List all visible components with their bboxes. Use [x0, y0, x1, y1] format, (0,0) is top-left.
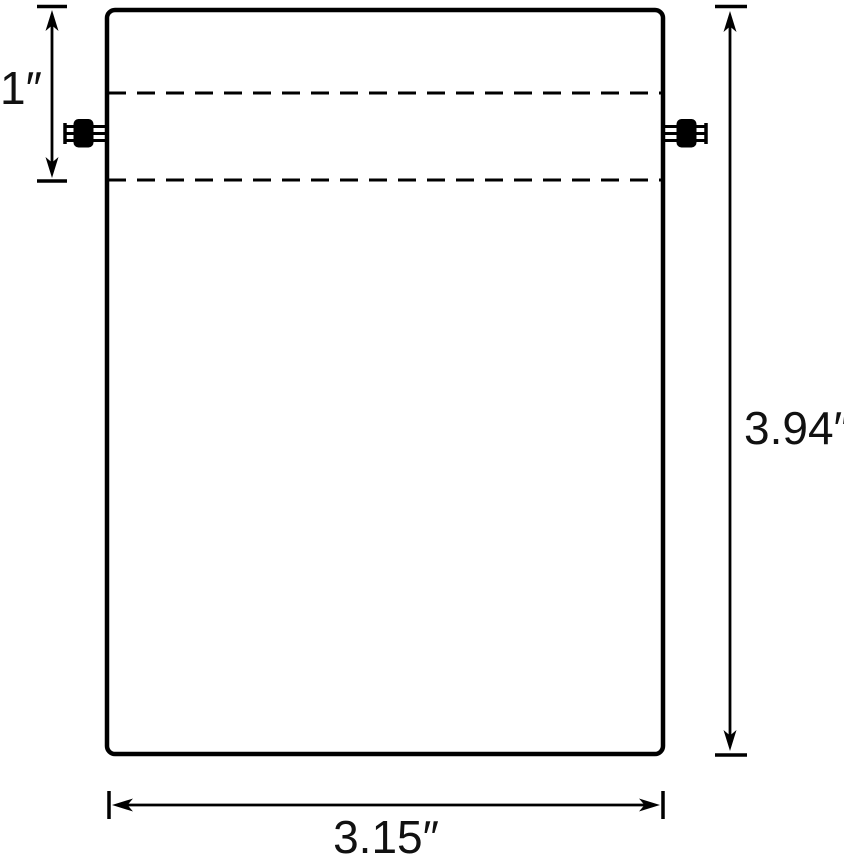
cord-lock-right-icon	[661, 119, 706, 148]
diagram-canvas: 1″ 3.94″ 3.15″	[0, 0, 844, 856]
bag-width-label: 3.15″	[333, 811, 439, 856]
dimension-bag-height: 3.94″	[715, 7, 844, 756]
cord-toggle	[677, 119, 697, 148]
cord-toggle	[74, 119, 94, 148]
hem-height-label: 1″	[0, 62, 42, 114]
bag-height-label: 3.94″	[744, 402, 844, 454]
dimension-bag-width: 3.15″	[109, 791, 663, 856]
cord-lock-left-icon	[65, 119, 108, 148]
bag-outline	[107, 10, 663, 754]
bag-dimension-diagram: 1″ 3.94″ 3.15″	[0, 0, 844, 856]
dimension-hem-height: 1″	[0, 7, 67, 182]
